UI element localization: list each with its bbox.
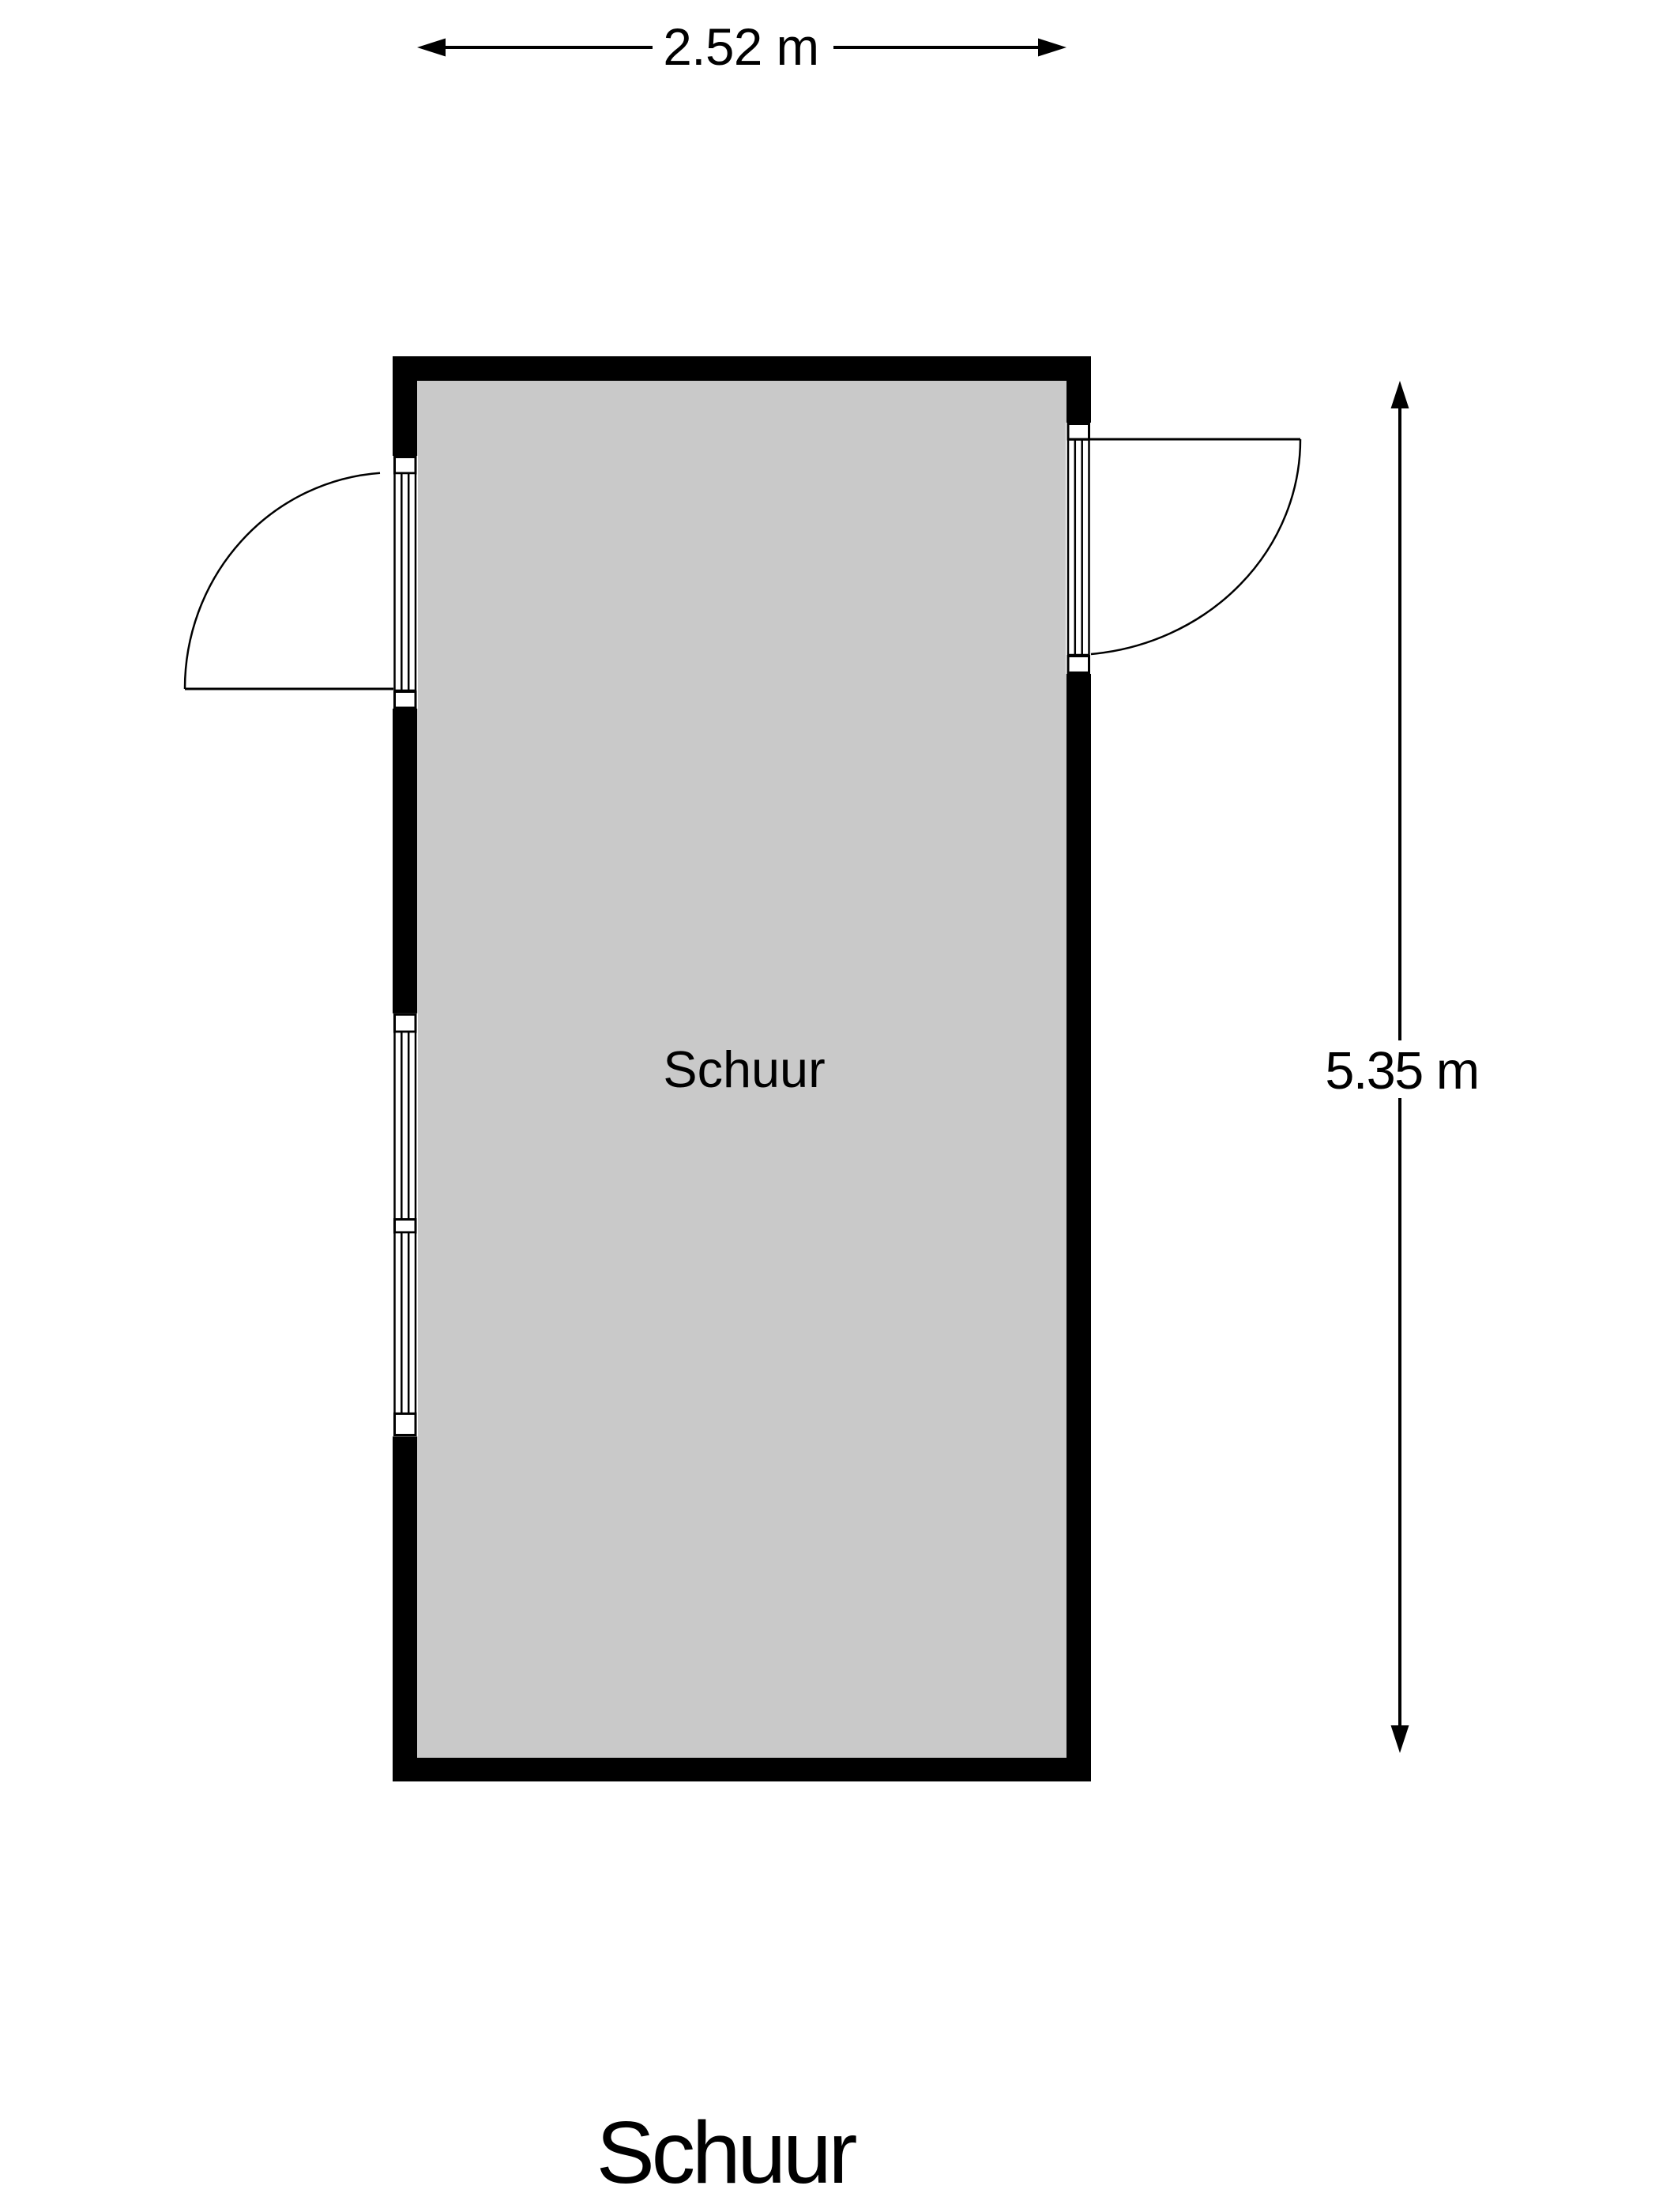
svg-text:Schuur: Schuur xyxy=(663,1040,825,1098)
svg-text:Schuur: Schuur xyxy=(596,2104,857,2202)
svg-text:2.52 m: 2.52 m xyxy=(663,18,818,76)
svg-text:5.35 m: 5.35 m xyxy=(1325,1042,1478,1100)
